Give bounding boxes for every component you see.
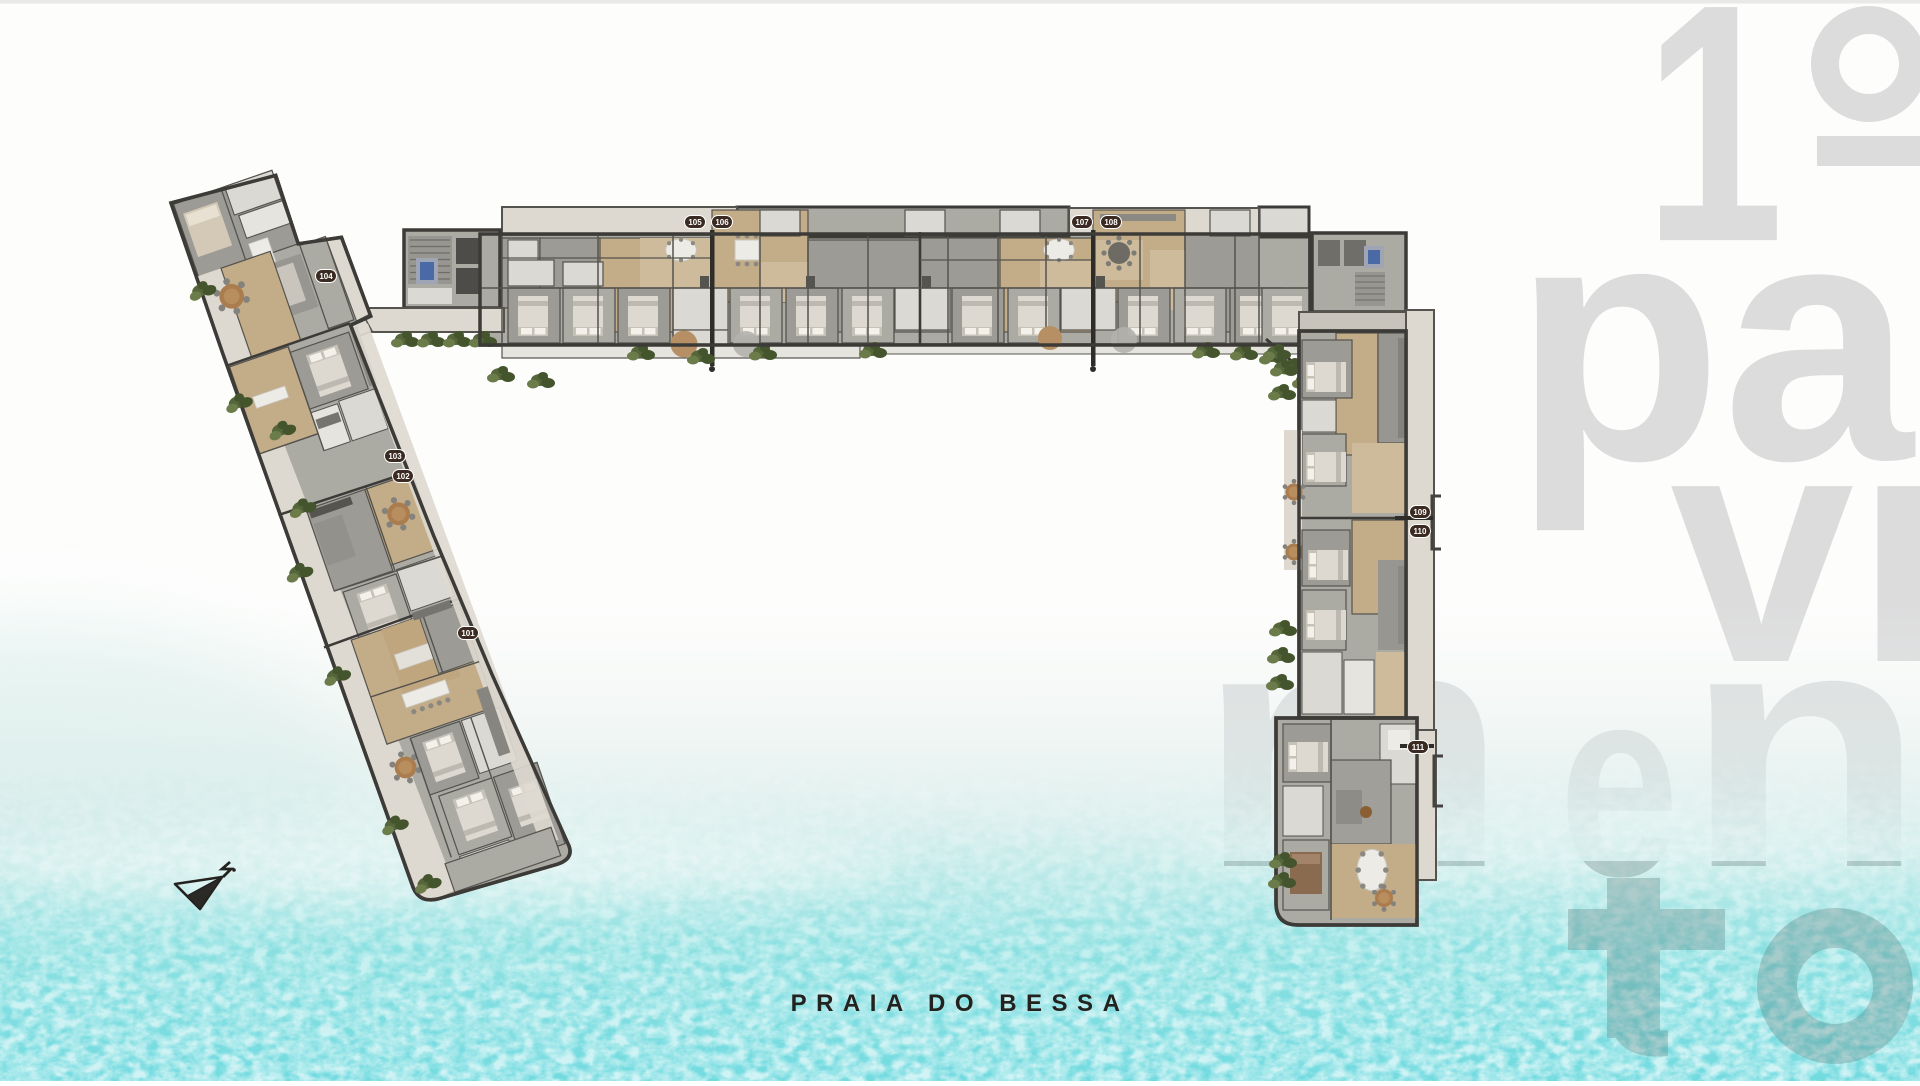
svg-text:104: 104	[319, 272, 333, 281]
svg-text:110: 110	[1414, 527, 1427, 536]
svg-text:109: 109	[1413, 508, 1427, 517]
svg-text:102: 102	[396, 472, 410, 481]
svg-text:107: 107	[1075, 218, 1089, 227]
svg-text:105: 105	[688, 218, 702, 227]
svg-text:111: 111	[1412, 743, 1425, 752]
svg-text:PRAIA DO BESSA: PRAIA DO BESSA	[791, 990, 1130, 1017]
svg-text:106: 106	[715, 218, 729, 227]
svg-text:101: 101	[461, 629, 475, 638]
svg-text:108: 108	[1104, 218, 1118, 227]
svg-text:103: 103	[388, 452, 402, 461]
